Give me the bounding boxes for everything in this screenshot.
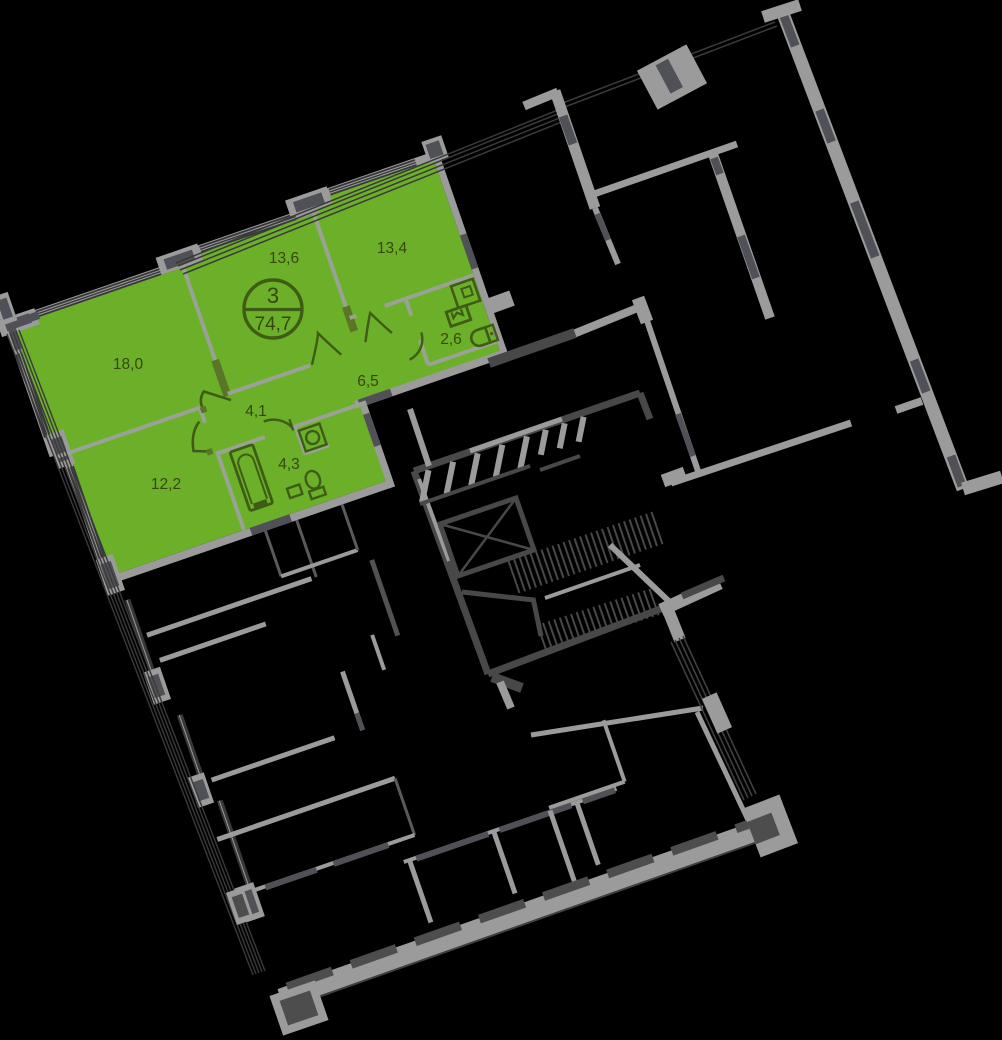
svg-text:74,7: 74,7 [255,314,292,335]
svg-text:3: 3 [267,283,279,308]
svg-text:6,5: 6,5 [357,373,379,390]
svg-text:4,3: 4,3 [278,456,300,473]
svg-text:12,2: 12,2 [151,476,181,493]
svg-text:4,1: 4,1 [245,403,267,420]
svg-text:13,6: 13,6 [269,250,299,267]
svg-text:18,0: 18,0 [113,356,144,373]
svg-text:2,6: 2,6 [440,331,462,348]
svg-text:13,4: 13,4 [377,240,408,257]
